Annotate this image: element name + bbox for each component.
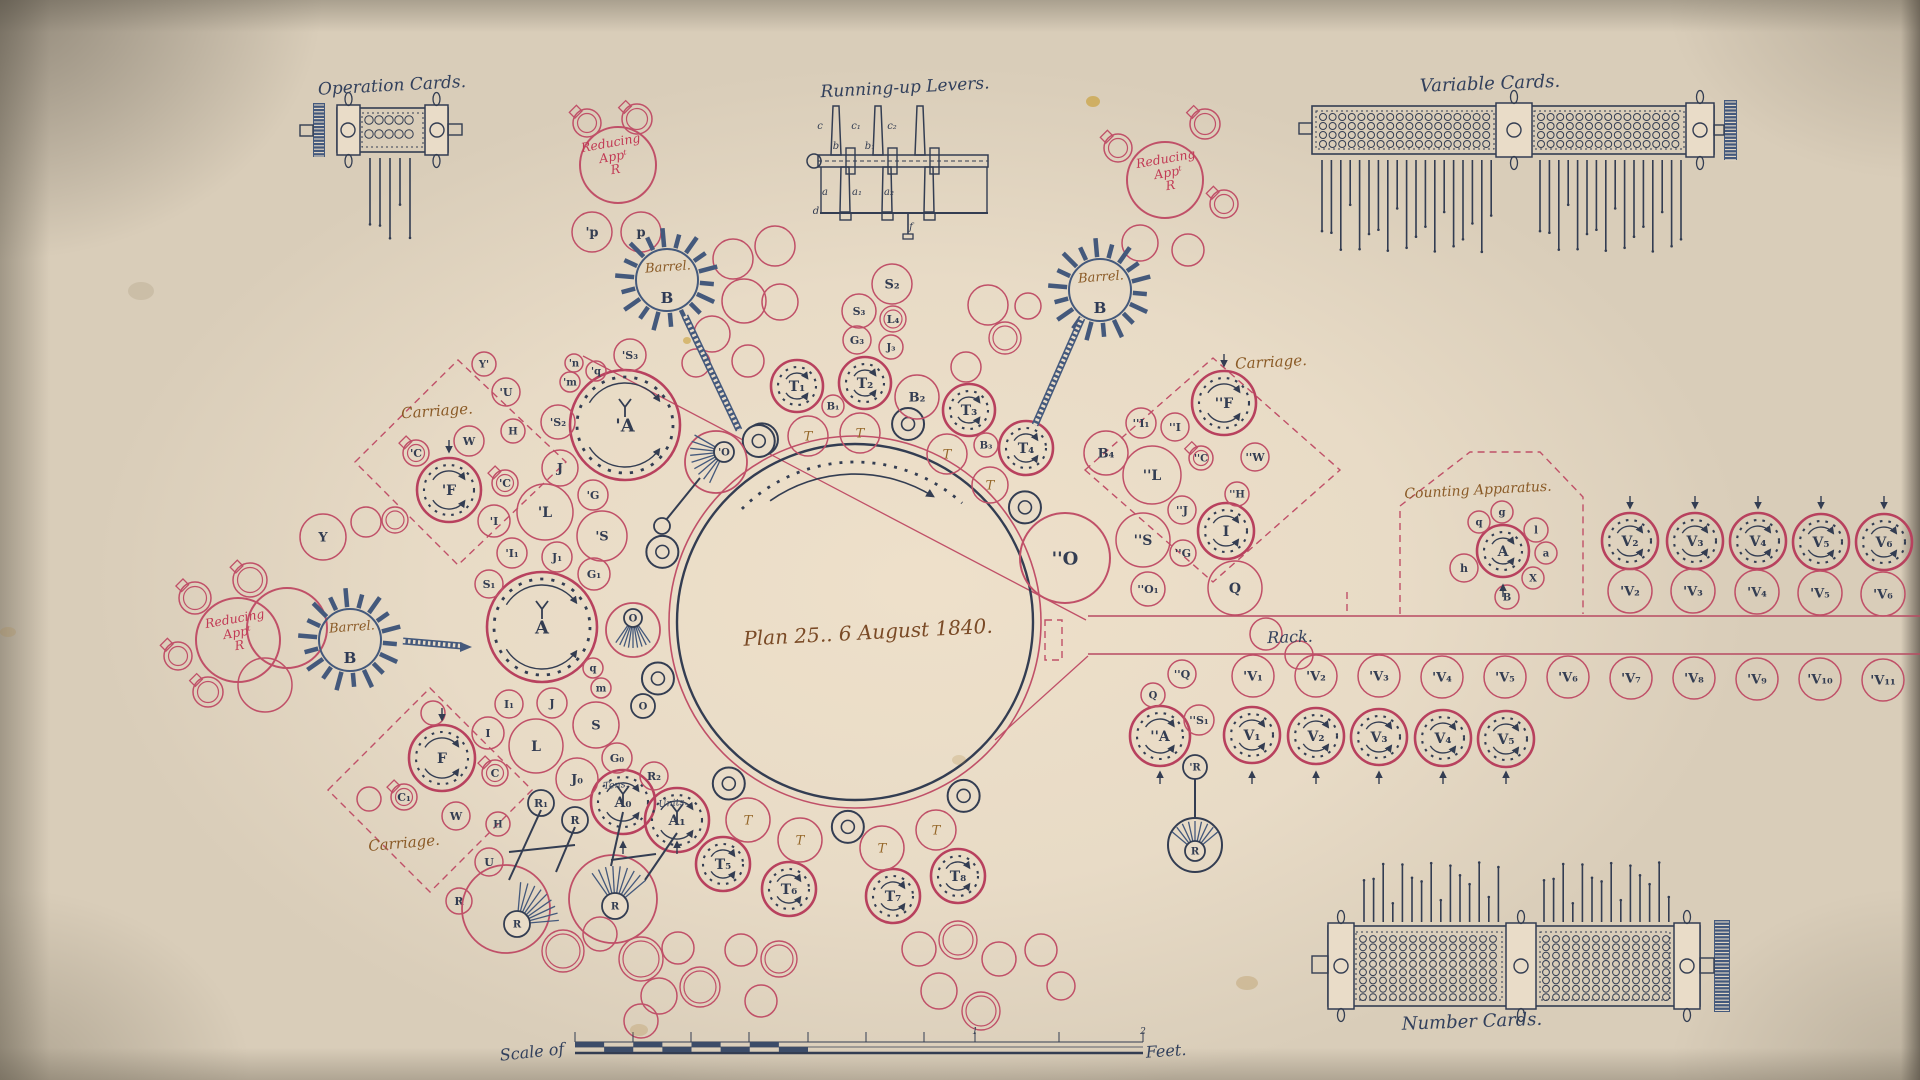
svg-text:V₁: V₁ [1243, 728, 1261, 744]
svg-text:l: l [1534, 526, 1538, 537]
svg-text:c: c [817, 121, 823, 132]
svg-text:R: R [1191, 847, 1200, 858]
svg-text:T: T [986, 479, 996, 494]
svg-text:C: C [491, 767, 500, 780]
svg-text:T: T [856, 427, 866, 442]
svg-text:B₂: B₂ [909, 391, 926, 406]
svg-text:V₅: V₅ [1812, 535, 1830, 551]
svg-text:R: R [611, 902, 620, 913]
svg-text:T₃: T₃ [961, 403, 978, 419]
svg-text:O: O [629, 614, 638, 625]
svg-text:'F: 'F [442, 483, 456, 499]
svg-text:V₂: V₂ [1621, 534, 1639, 550]
svg-text:J₃: J₃ [885, 343, 895, 354]
svg-text:'q: 'q [591, 367, 601, 378]
svg-text:'V₈: 'V₈ [1684, 672, 1704, 687]
svg-text:''G: ''G [1175, 547, 1191, 560]
svg-text:d: d [813, 206, 819, 217]
svg-text:'I₁: 'I₁ [505, 547, 519, 560]
svg-text:W: W [449, 810, 463, 823]
plan-drawing-canvas: 'AA'FF''FIT₁T₂T₃T₄T₅T₆T₇T₈A₀A₁''AAV₂V₃V₄… [0, 0, 1920, 1080]
svg-text:'G: 'G [587, 489, 600, 502]
svg-text:T₇: T₇ [885, 889, 902, 905]
svg-text:C₁: C₁ [397, 791, 411, 804]
svg-text:T₄: T₄ [1018, 441, 1035, 457]
svg-text:h: h [1460, 562, 1468, 575]
scale-bar [575, 1032, 1143, 1053]
svg-text:''C: ''C [1194, 454, 1208, 465]
svg-text:'C: 'C [499, 477, 511, 490]
svg-text:L₄: L₄ [887, 313, 900, 326]
svg-text:G₁: G₁ [587, 568, 601, 581]
svg-text:2: 2 [1139, 1027, 1146, 1037]
svg-text:g: g [1499, 508, 1506, 519]
svg-text:a₁: a₁ [852, 187, 862, 198]
svg-text:p: p [636, 226, 645, 241]
svg-text:T: T [804, 430, 814, 445]
svg-text:A: A [1497, 544, 1510, 560]
svg-text:'V₃: 'V₃ [1369, 670, 1389, 685]
svg-text:'S₂: 'S₂ [550, 416, 566, 429]
svg-text:'S: 'S [595, 530, 608, 545]
svg-text:R₂: R₂ [647, 770, 661, 783]
svg-text:''O₁: ''O₁ [1137, 583, 1158, 596]
svg-text:'V₅: 'V₅ [1810, 587, 1830, 602]
svg-text:''H: ''H [1229, 490, 1245, 501]
svg-text:T: T [878, 842, 888, 857]
svg-text:'V₁₁: 'V₁₁ [1870, 674, 1895, 689]
running-up-levers [807, 106, 988, 239]
svg-text:'I: 'I [490, 515, 499, 528]
svg-text:b₁: b₁ [865, 141, 875, 152]
svg-text:c₁: c₁ [851, 121, 861, 132]
svg-text:c₂: c₂ [887, 121, 897, 132]
svg-text:J: J [548, 697, 554, 710]
svg-text:B: B [1503, 593, 1511, 604]
svg-text:'V₂: 'V₂ [1306, 670, 1326, 685]
svg-text:''S: ''S [1134, 533, 1153, 549]
svg-text:A: A [534, 617, 550, 638]
svg-text:T: T [796, 834, 806, 849]
svg-text:R₁: R₁ [534, 797, 548, 810]
svg-text:'O: 'O [718, 448, 730, 459]
svg-text:W: W [462, 435, 476, 448]
svg-text:X: X [1529, 574, 1537, 585]
svg-text:G₃: G₃ [850, 334, 864, 347]
svg-text:''Q: ''Q [1174, 668, 1191, 681]
svg-text:V₂: V₂ [1307, 729, 1325, 745]
svg-text:f: f [908, 222, 915, 233]
svg-text:'V₁₀: 'V₁₀ [1807, 673, 1833, 688]
svg-text:'V₇: 'V₇ [1621, 672, 1641, 687]
svg-text:Q: Q [1229, 581, 1241, 597]
svg-text:F: F [437, 751, 447, 767]
svg-text:T₆: T₆ [781, 882, 798, 898]
svg-text:''O: ''O [1052, 548, 1079, 569]
svg-text:''L: ''L [1143, 468, 1162, 484]
svg-text:H: H [508, 427, 517, 438]
svg-text:Y: Y [317, 531, 328, 546]
svg-text:'C: 'C [410, 447, 422, 460]
svg-text:V₃: V₃ [1370, 730, 1388, 746]
svg-text:V₄: V₄ [1434, 731, 1452, 747]
svg-text:''I: ''I [1169, 421, 1181, 434]
svg-text:'V₄: 'V₄ [1432, 671, 1452, 686]
svg-text:'V₆: 'V₆ [1873, 588, 1893, 603]
svg-text:S₁: S₁ [483, 578, 496, 591]
svg-text:q: q [590, 664, 597, 675]
svg-text:S: S [591, 719, 600, 734]
svg-text:b: b [833, 141, 839, 152]
svg-text:R: R [513, 920, 522, 931]
svg-text:G₀: G₀ [610, 752, 624, 765]
svg-text:'L: 'L [538, 505, 552, 521]
svg-text:'V₉: 'V₉ [1747, 673, 1767, 688]
svg-text:q: q [1476, 518, 1483, 529]
svg-text:I: I [1223, 524, 1230, 540]
svg-text:'V₄: 'V₄ [1747, 586, 1767, 601]
svg-text:I: I [485, 727, 490, 740]
svg-text:R: R [570, 814, 580, 827]
svg-text:''F: ''F [1215, 396, 1234, 412]
svg-text:''W: ''W [1245, 451, 1265, 464]
svg-text:Q: Q [1149, 691, 1158, 702]
svg-text:''A: ''A [1150, 729, 1171, 745]
svg-text:'R: 'R [1189, 763, 1201, 774]
svg-text:V₃: V₃ [1686, 534, 1704, 550]
svg-text:Y': Y' [478, 360, 489, 371]
svg-text:V₅: V₅ [1497, 732, 1515, 748]
svg-text:S₃: S₃ [853, 305, 866, 318]
central-wheel [642, 408, 1041, 843]
svg-text:V₆: V₆ [1875, 535, 1893, 551]
svg-text:''I₁: ''I₁ [1133, 417, 1150, 430]
svg-text:T: T [943, 448, 953, 463]
svg-text:L: L [531, 739, 541, 755]
svg-text:'V₁: 'V₁ [1243, 670, 1263, 685]
svg-text:'p: 'p [585, 226, 598, 241]
svg-text:T₁: T₁ [789, 379, 806, 395]
svg-text:'U: 'U [500, 386, 513, 399]
svg-text:'n: 'n [569, 359, 580, 370]
svg-text:'V₃: 'V₃ [1683, 585, 1703, 600]
fly-fans: 'OORRR [462, 431, 1222, 953]
svg-text:a: a [1543, 549, 1550, 560]
svg-text:H: H [493, 820, 502, 831]
svg-text:B₃: B₃ [980, 441, 993, 452]
svg-text:a: a [822, 187, 828, 198]
svg-text:B₄: B₄ [1098, 447, 1115, 462]
svg-text:''S₁: ''S₁ [1189, 714, 1209, 727]
svg-text:T: T [932, 824, 942, 839]
svg-text:T₈: T₈ [950, 869, 967, 885]
svg-text:'V₅: 'V₅ [1495, 671, 1515, 686]
svg-text:S₂: S₂ [884, 278, 899, 293]
dashed-boundaries [328, 358, 1583, 892]
analytical-engine-plan: 'AA'FF''FIT₁T₂T₃T₄T₅T₆T₇T₈A₀A₁''AAV₂V₃V₄… [0, 0, 1920, 1080]
svg-text:V₄: V₄ [1749, 534, 1767, 550]
svg-text:O: O [639, 702, 648, 713]
svg-text:I₁: I₁ [504, 698, 514, 711]
svg-text:'A: 'A [615, 415, 636, 436]
svg-text:'m: 'm [563, 378, 577, 389]
svg-text:J₀: J₀ [570, 773, 583, 788]
svg-text:T: T [744, 814, 754, 829]
svg-text:J: J [556, 462, 563, 477]
svg-text:'V₂: 'V₂ [1620, 585, 1640, 600]
svg-text:'S₃: 'S₃ [622, 349, 638, 362]
svg-text:'V₆: 'V₆ [1558, 671, 1578, 686]
svg-text:''J: ''J [1176, 504, 1188, 517]
svg-text:T₅: T₅ [715, 857, 732, 873]
svg-text:m: m [596, 684, 607, 695]
svg-text:B₁: B₁ [827, 402, 840, 413]
svg-text:a₂: a₂ [884, 187, 894, 198]
svg-text:T₂: T₂ [857, 376, 874, 392]
svg-text:J₁: J₁ [551, 551, 562, 564]
svg-text:1: 1 [972, 1027, 978, 1037]
